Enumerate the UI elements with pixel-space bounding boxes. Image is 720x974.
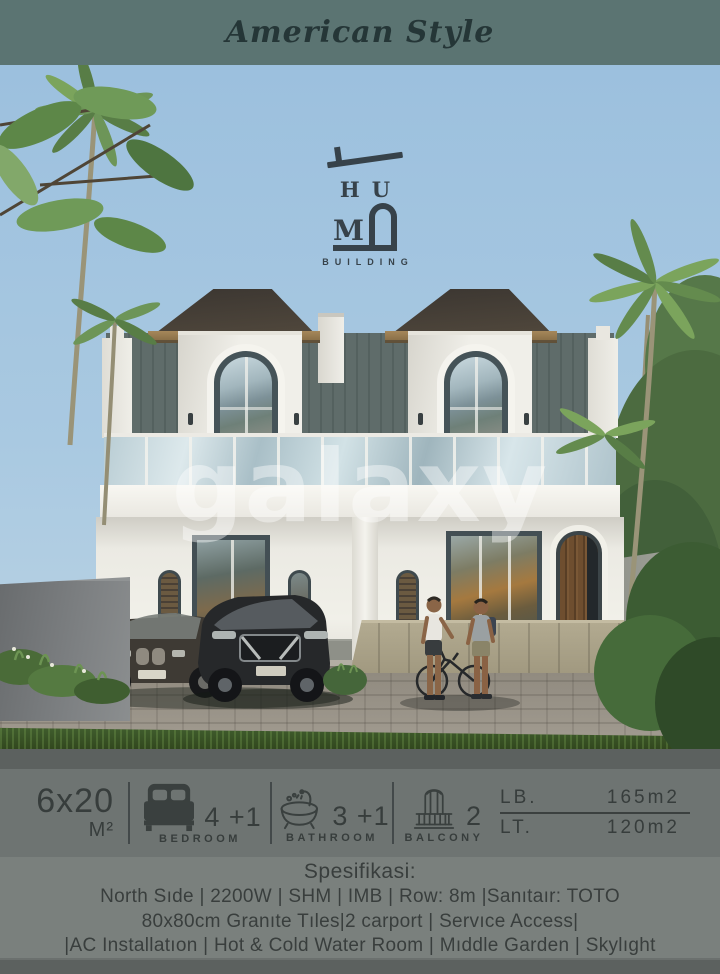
specification-line: North Sıde | 2200W | SHM | IMB | Row: 8m… xyxy=(0,885,720,910)
divider-strip xyxy=(0,749,720,769)
building-area-value: 165m2 xyxy=(552,787,690,809)
area-summary: LB. 165m2 LT. 120m2 xyxy=(500,787,690,839)
building-area-row: LB. 165m2 xyxy=(500,787,690,809)
land-area-value: 120m2 xyxy=(552,817,690,839)
style-title: American Style xyxy=(226,15,495,50)
bottom-bar xyxy=(0,958,720,974)
shrub-center xyxy=(323,664,367,695)
bedroom-label: BEDROOM xyxy=(159,833,241,845)
foreground-leaves-top-left xyxy=(0,81,201,260)
balcony-icon xyxy=(406,783,462,831)
bathtub-icon xyxy=(274,783,328,831)
property-flyer: American Style HU M BUILDING xyxy=(0,0,720,974)
area-divider-line xyxy=(500,812,690,814)
watermark: galaxy xyxy=(0,437,720,537)
land-area-label: LT. xyxy=(500,817,552,839)
bed-icon xyxy=(138,782,200,832)
land-area-row: LT. 120m2 xyxy=(500,817,690,839)
specification-section: Spesifikasi: North Sıde | 2200W | SHM | … xyxy=(0,857,720,958)
bathroom-label: BATHROOM xyxy=(286,832,378,844)
bathroom-spec: 3 +1 BATHROOM xyxy=(272,783,392,844)
specs-bar: 6x20 M² 4 +1 BEDROOM xyxy=(0,769,720,857)
plants-left-wall xyxy=(0,647,130,704)
specification-line: |AC Installatıon | Hot & Cold Water Room… xyxy=(0,934,720,959)
foreground-vegetation xyxy=(0,65,720,749)
balcony-count: 2 xyxy=(466,801,482,831)
specification-title: Spesifikasi: xyxy=(0,857,720,885)
header-bar: American Style xyxy=(0,0,720,65)
house-rendering: HU M BUILDING xyxy=(0,65,720,749)
bushes-right xyxy=(594,542,720,749)
balcony-spec: 2 BALCONY xyxy=(394,783,494,844)
bedroom-spec: 4 +1 BEDROOM xyxy=(130,782,270,845)
specification-line: 80x80cm Granıte Tıles|2 carport | Servıc… xyxy=(0,910,720,935)
lot-size-unit: M² xyxy=(89,819,114,842)
lot-size-value: 6x20 xyxy=(36,784,114,818)
balcony-label: BALCONY xyxy=(405,832,484,844)
lot-size: 6x20 M² xyxy=(0,784,128,842)
bathroom-count: 3 +1 xyxy=(332,801,389,831)
bedroom-count: 4 +1 xyxy=(204,802,261,832)
building-area-label: LB. xyxy=(500,787,552,809)
